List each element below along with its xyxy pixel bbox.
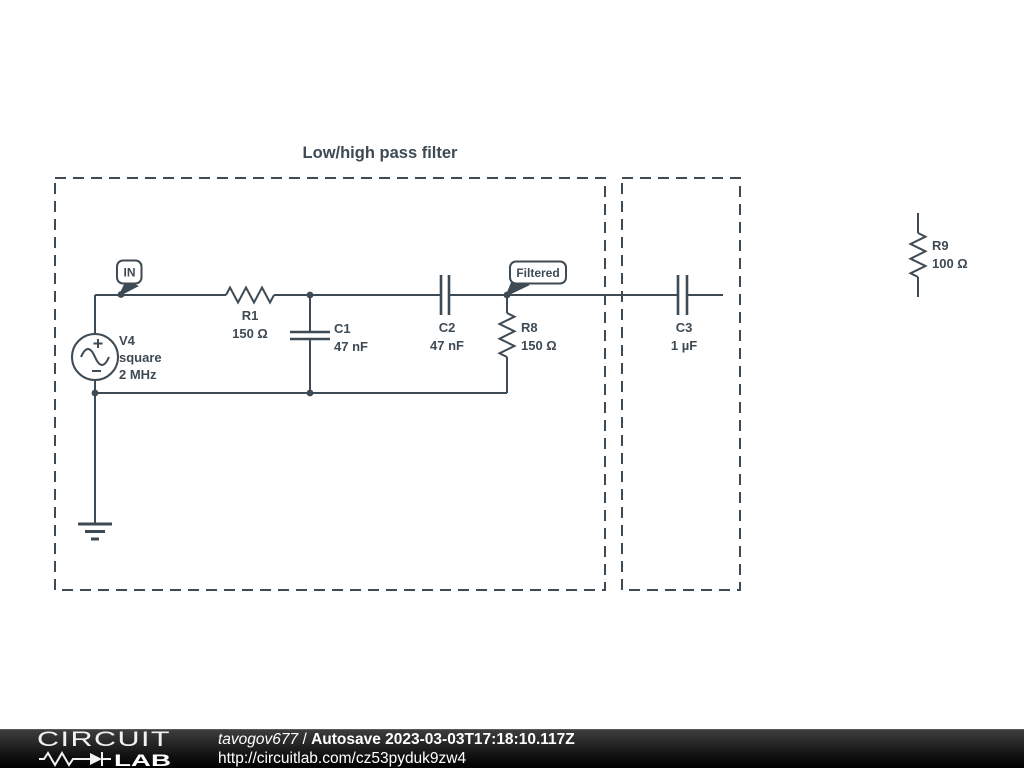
schematic-svg: Low/high pass filter	[0, 0, 1024, 729]
r9-ref-label: R9	[932, 238, 949, 253]
filter-region-dashed-box	[55, 178, 605, 590]
share-url[interactable]: http://circuitlab.com/cz53pyduk9zw4	[218, 749, 575, 768]
r1-value-label: 150 Ω	[232, 326, 268, 341]
r8-zigzag	[500, 313, 515, 357]
c2-ref-label: C2	[439, 320, 456, 335]
v4-type-label: square	[119, 350, 162, 365]
v4-value-label: 2 MHz	[119, 367, 157, 382]
r8-ref-label: R8	[521, 320, 538, 335]
v4-plus-icon	[94, 339, 103, 348]
schematic-title: Low/high pass filter	[303, 144, 459, 162]
resistor-r8: R8 150 Ω	[500, 313, 557, 357]
v4-sine-icon	[81, 349, 109, 365]
c3-value-label: 1 µF	[671, 338, 697, 353]
junction-dot	[92, 390, 99, 397]
schematic-canvas: Low/high pass filter	[0, 0, 1024, 729]
junction-dot	[307, 292, 314, 299]
capacitor-c1: C1 47 nF	[290, 321, 368, 354]
resistor-r9: R9 100 Ω	[911, 213, 968, 297]
credits-separator: /	[298, 731, 311, 748]
r8-value-label: 150 Ω	[521, 338, 557, 353]
circuitlab-logo: CIRCUIT LAB	[36, 730, 186, 768]
logo-lab-text: LAB	[114, 752, 171, 768]
c1-ref-label: C1	[334, 321, 351, 336]
filtered-flag-label: Filtered	[516, 266, 559, 280]
save-title: Autosave 2023-03-03T17:18:10.117Z	[311, 731, 575, 748]
r1-zigzag	[226, 288, 274, 303]
logo-diode-triangle	[90, 753, 102, 765]
logo-resistor-diode-icon	[39, 752, 111, 766]
net-flag-in: IN	[117, 261, 142, 298]
r1-ref-label: R1	[242, 308, 259, 323]
junction-dot	[307, 390, 314, 397]
in-flag-node-dot	[118, 291, 125, 298]
footer-bar: CIRCUIT LAB tavogov677 / Autosave 2023-0…	[0, 729, 1024, 768]
voltage-source-v4: V4 square 2 MHz	[72, 333, 162, 382]
wires	[95, 295, 723, 524]
footer-credits: tavogov677 / Autosave 2023-03-03T17:18:1…	[218, 730, 575, 768]
capacitor-c2: C2 47 nF	[430, 275, 464, 353]
net-flag-filtered: Filtered	[505, 262, 566, 298]
c1-value-label: 47 nF	[334, 339, 368, 354]
logo-circuit-text: CIRCUIT	[37, 730, 171, 751]
c2-value-label: 47 nF	[430, 338, 464, 353]
r9-value-label: 100 Ω	[932, 256, 968, 271]
c3-ref-label: C3	[676, 320, 693, 335]
capacitor-c3: C3 1 µF	[671, 275, 697, 353]
author-name: tavogov677	[218, 731, 298, 748]
in-flag-label: IN	[124, 266, 136, 280]
output-region-dashed-box	[622, 178, 740, 590]
v4-ref-label: V4	[119, 333, 136, 348]
credits-line: tavogov677 / Autosave 2023-03-03T17:18:1…	[218, 730, 575, 749]
logo-resistor-zigzag	[39, 753, 79, 765]
r9-zigzag	[911, 233, 926, 277]
ground-symbol	[78, 524, 112, 539]
resistor-r1: R1 150 Ω	[226, 288, 274, 342]
